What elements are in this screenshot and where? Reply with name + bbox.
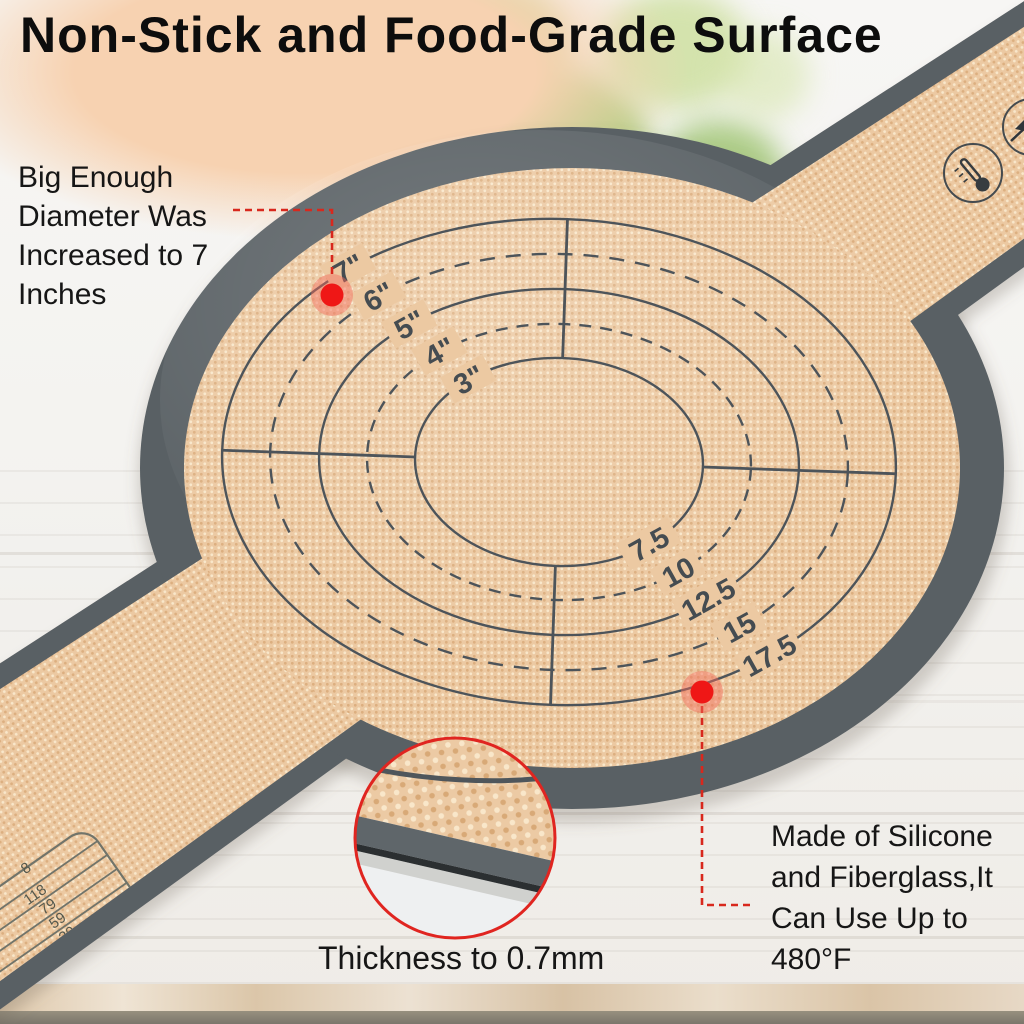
- callout-material: Made of Silicone and Fiberglass,It Can U…: [771, 816, 993, 980]
- callout-diameter: Big Enough Diameter Was Increased to 7 I…: [18, 158, 208, 314]
- headline-line2: Food-Grade Surface: [384, 7, 883, 63]
- headline-line1: Non-Stick and: [20, 7, 369, 63]
- headline: Non-Stick and Food-Grade Surface: [20, 4, 883, 67]
- product-photo: 7" 6" 5" 4" 3" 17.5: [0, 0, 1024, 1024]
- callout-thickness: Thickness to 0.7mm: [318, 940, 604, 977]
